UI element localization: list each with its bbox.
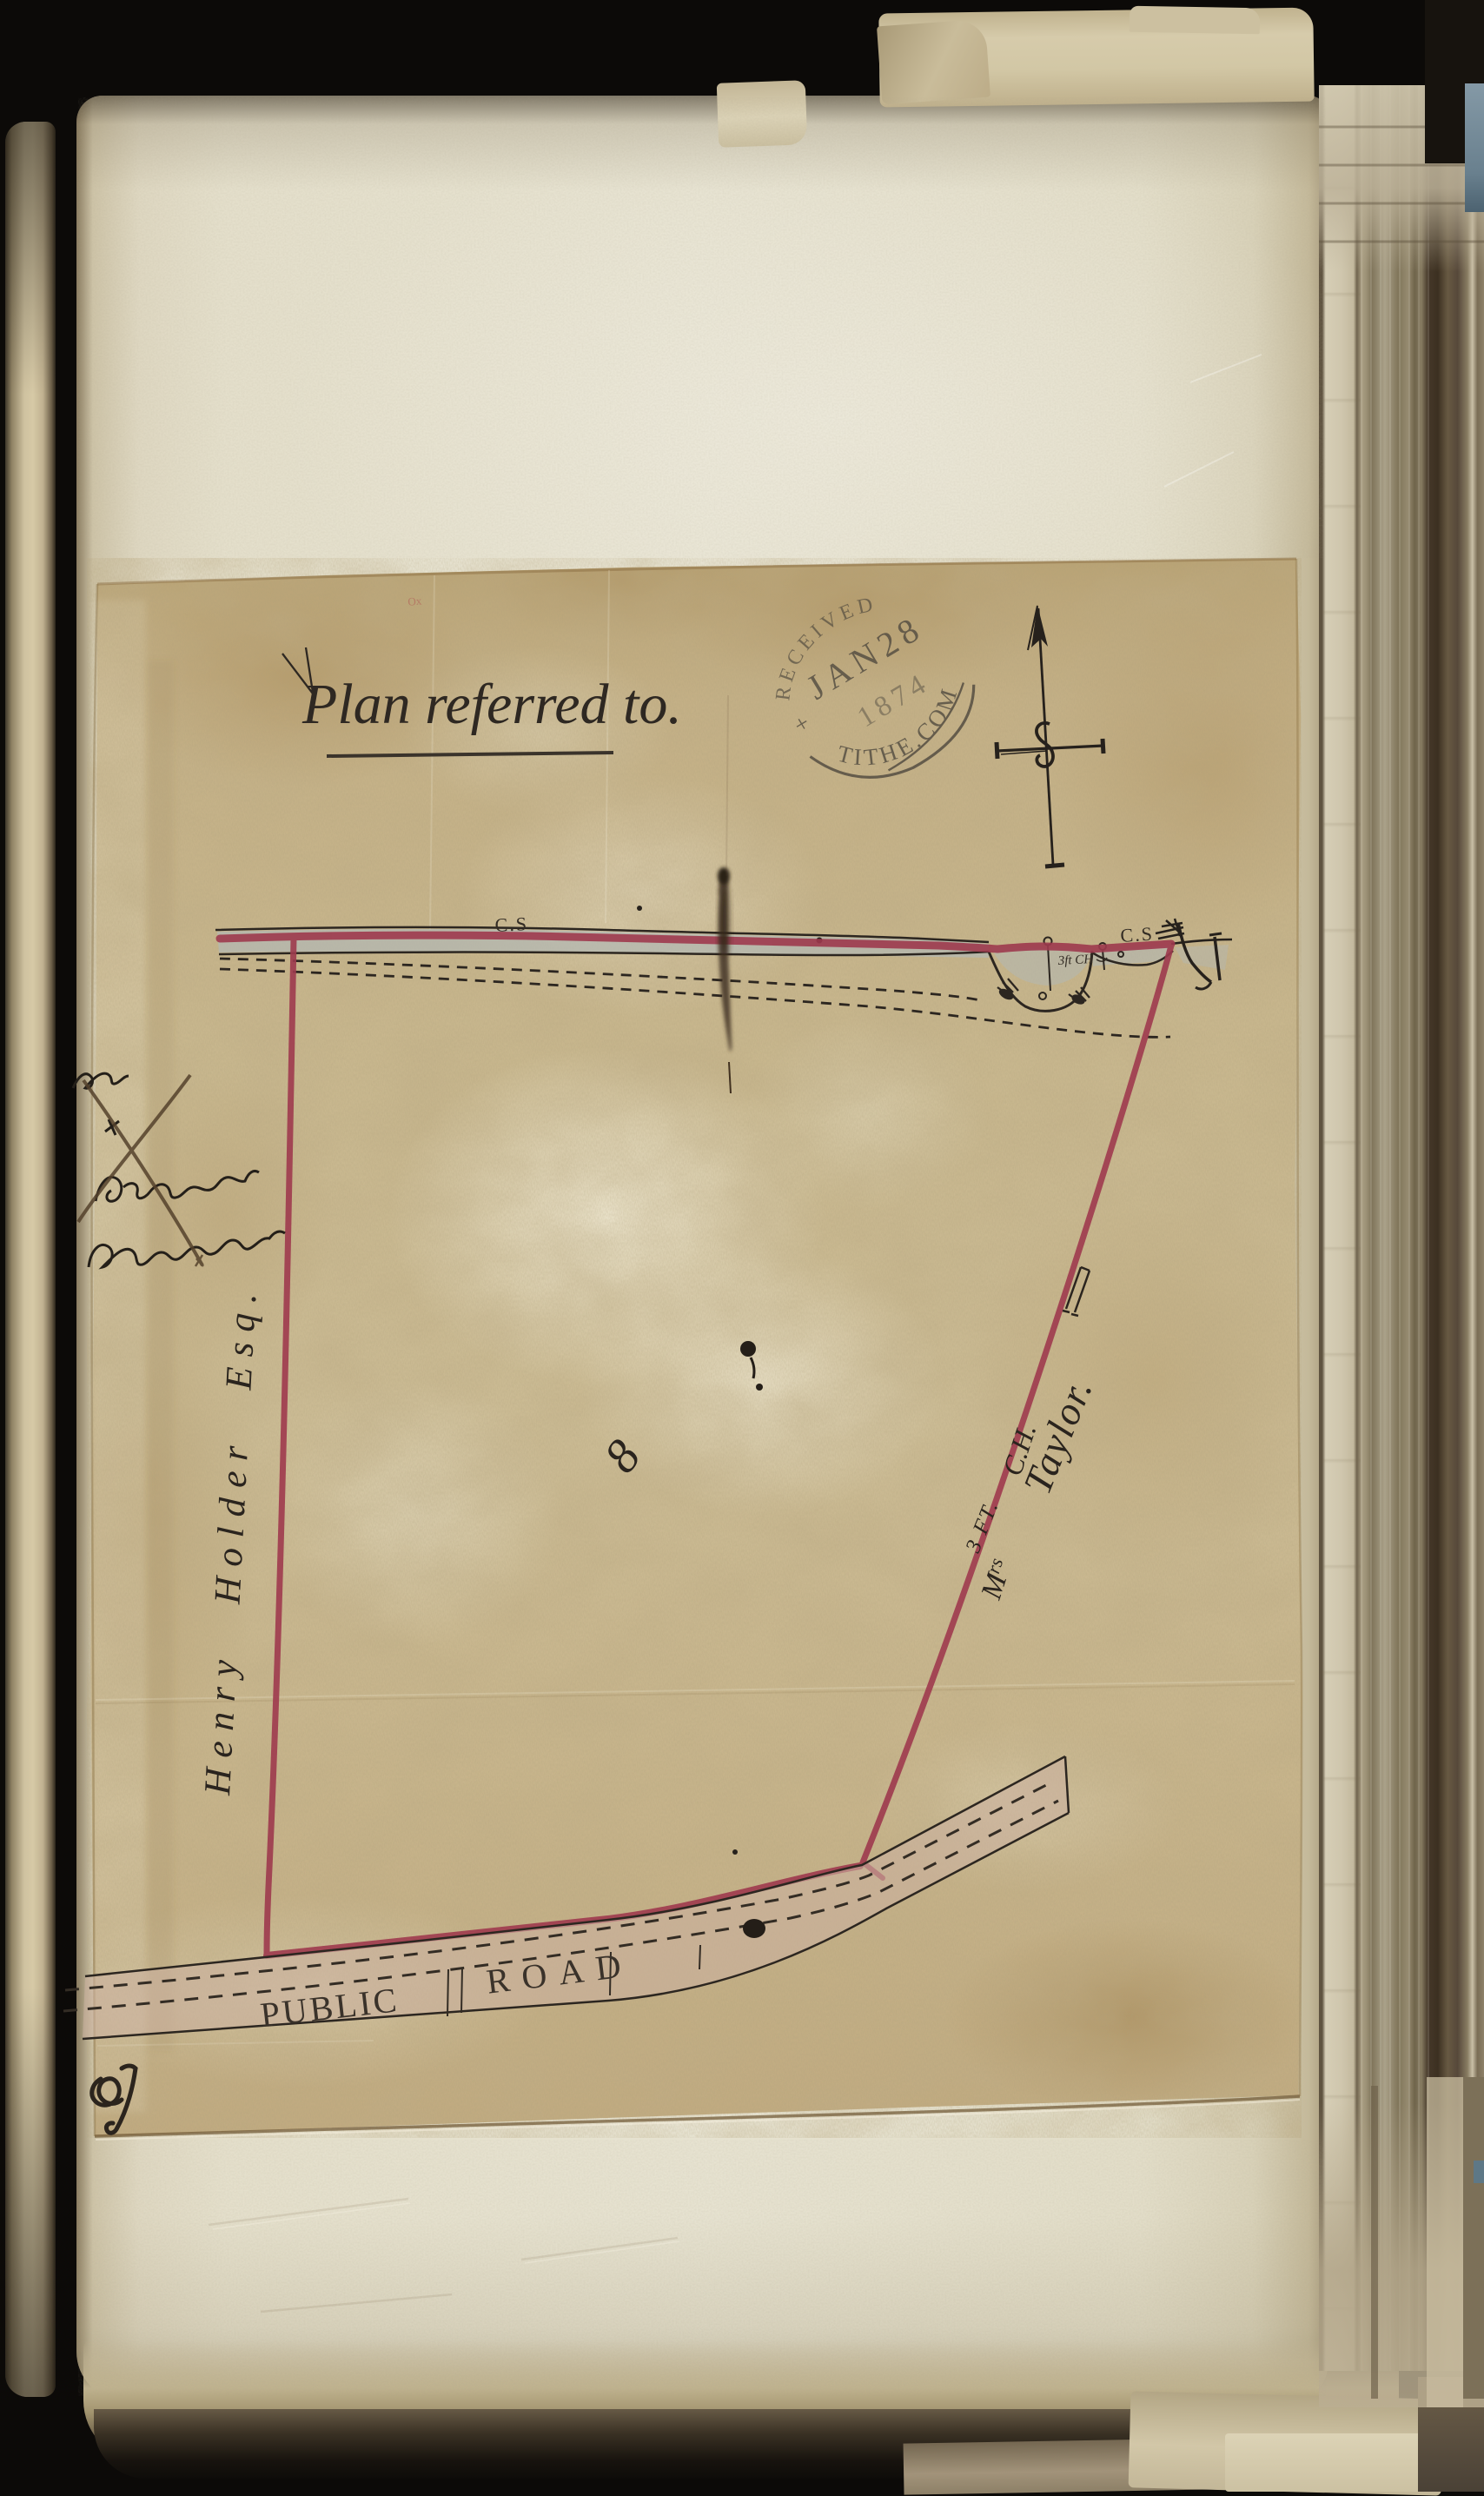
svg-text:C.S: C.S xyxy=(1120,922,1155,946)
svg-text:C.S: C.S xyxy=(494,913,529,936)
svg-text:Plan referred to.: Plan referred to. xyxy=(301,673,682,736)
svg-text:Ox: Ox xyxy=(407,594,423,607)
svg-text:3ft CH: 3ft CH xyxy=(1057,953,1094,968)
